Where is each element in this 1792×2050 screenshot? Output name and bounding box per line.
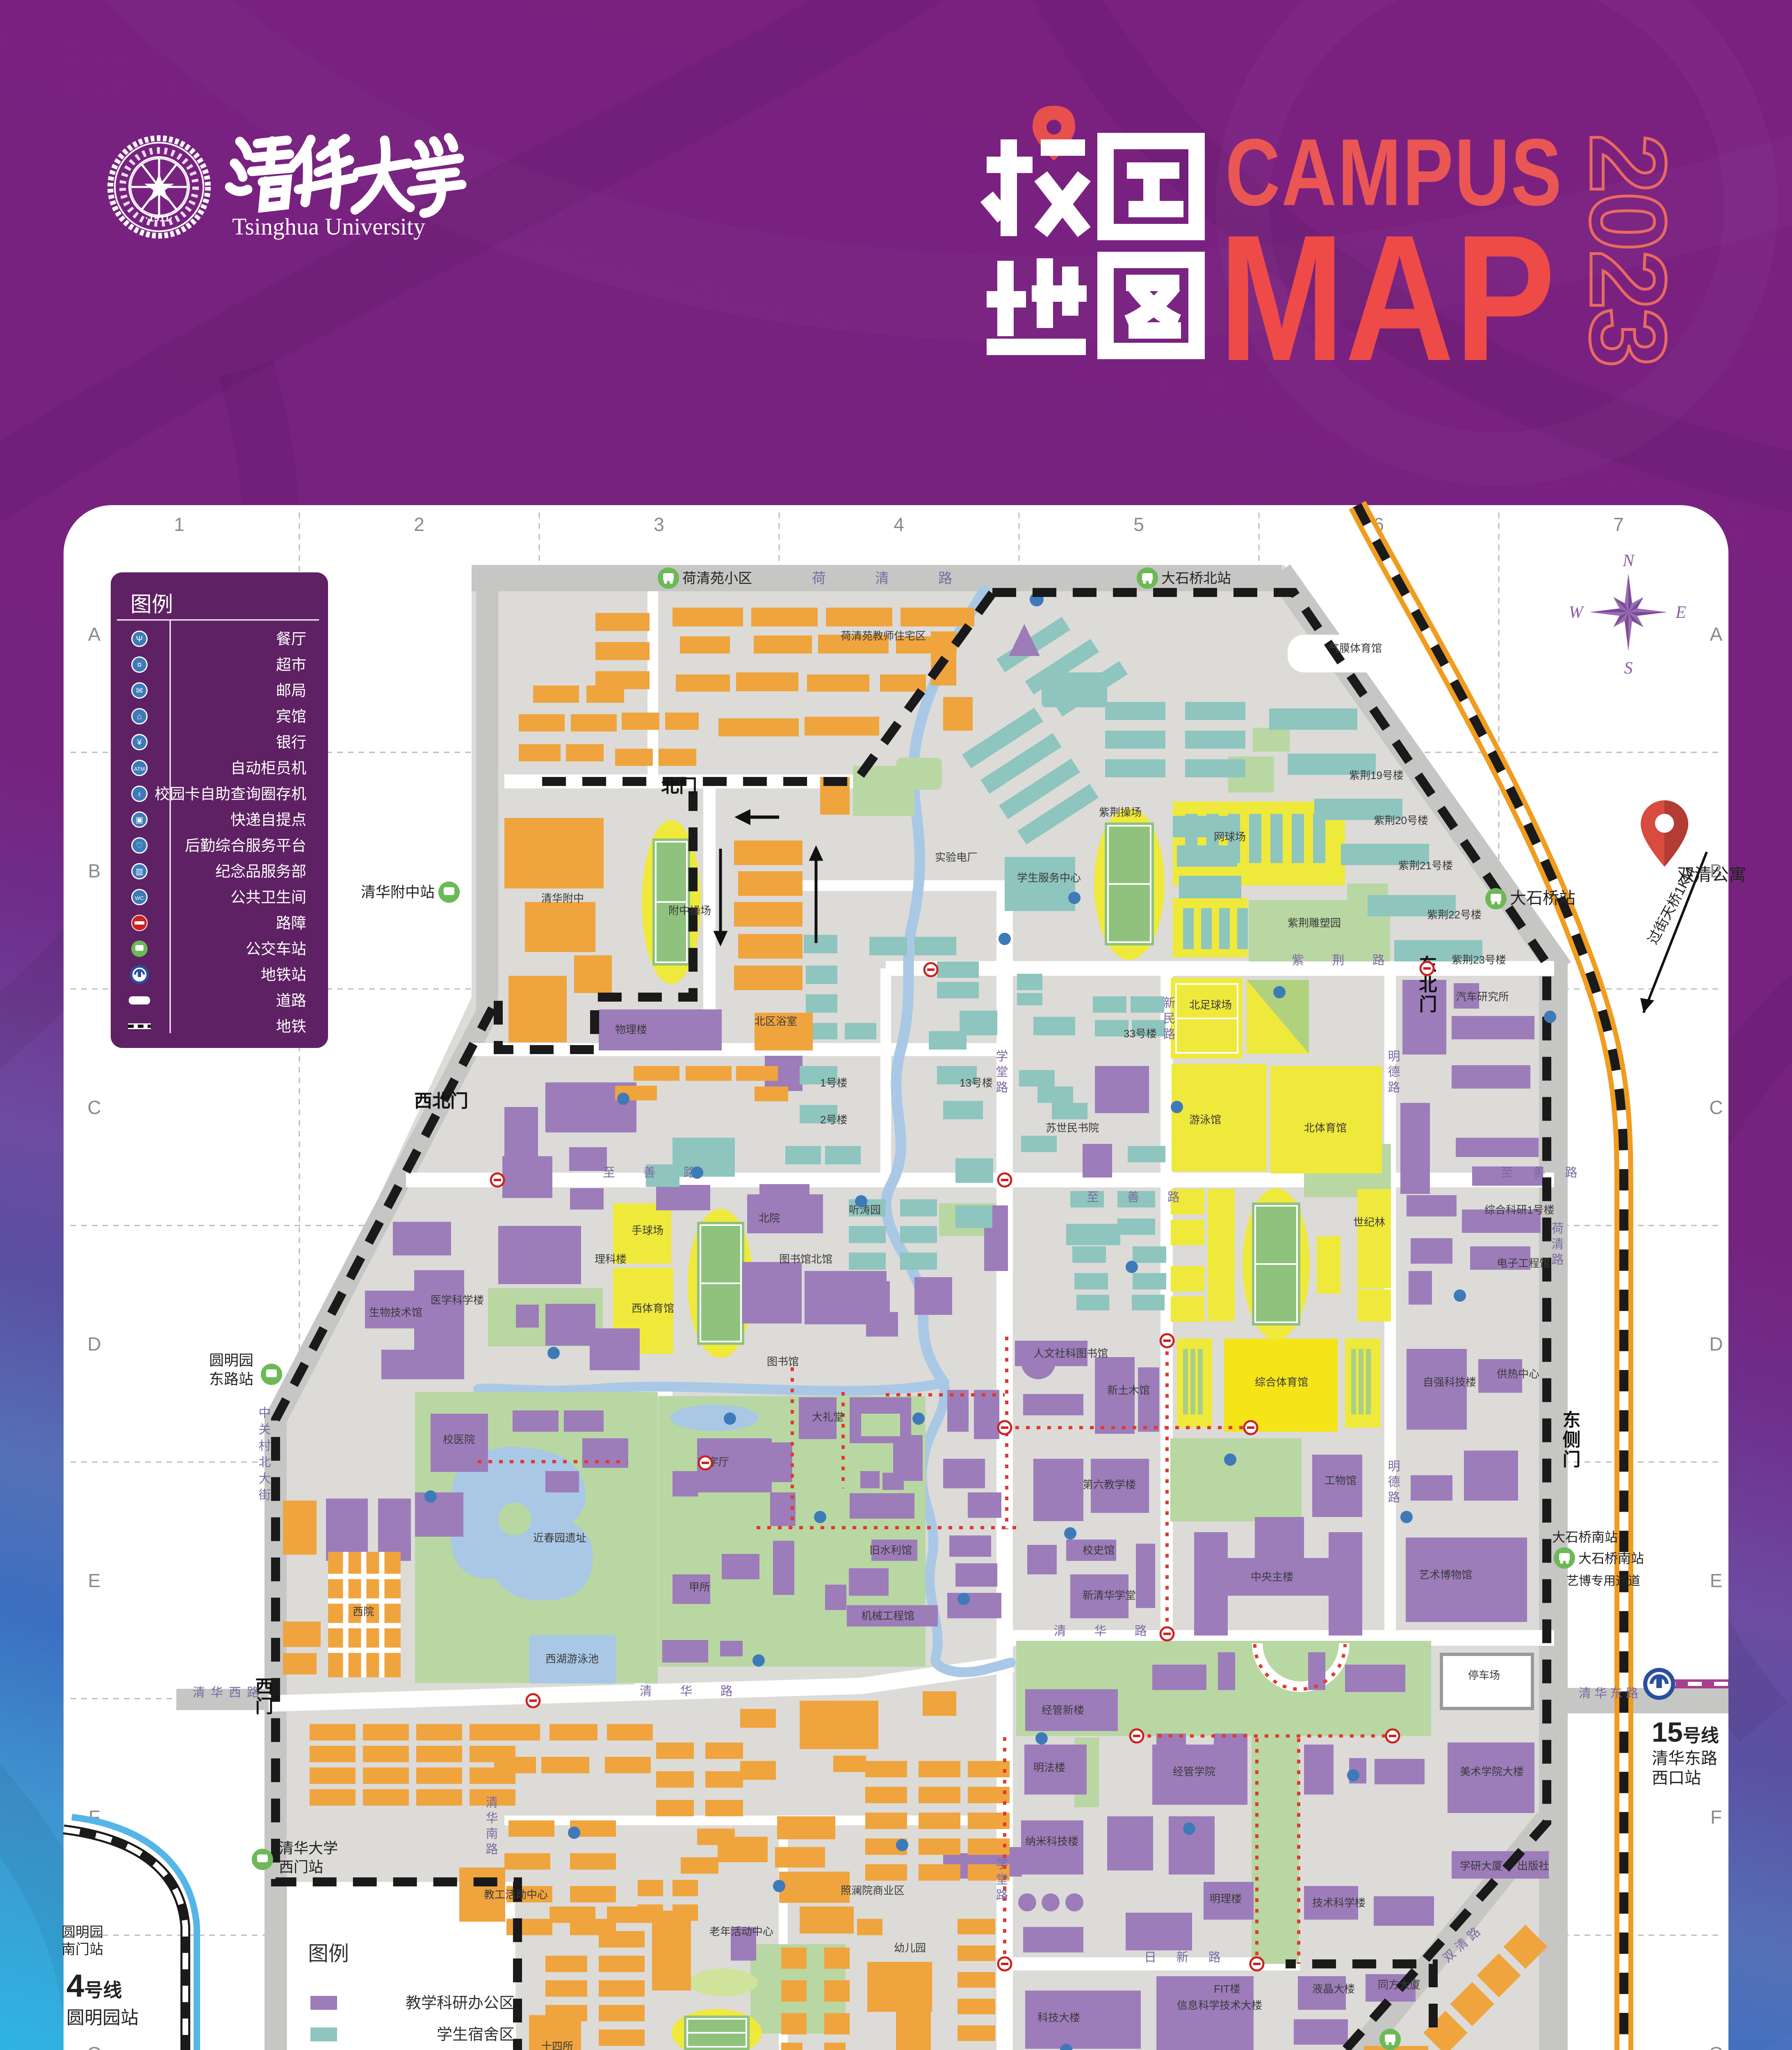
svg-text:B: B: [88, 860, 101, 881]
svg-text:日 新 路: 日 新 路: [1144, 1951, 1229, 1964]
svg-text:新民路: 新民路: [1161, 996, 1175, 1043]
svg-text:紫荆操场: 紫荆操场: [1099, 806, 1142, 818]
svg-text:西院: 西院: [353, 1606, 374, 1618]
svg-text:紫荆22号楼: 紫荆22号楼: [1427, 909, 1482, 921]
svg-text:艺博专用通道: 艺博专用通道: [1566, 1574, 1640, 1588]
svg-text:工物馆: 工物馆: [1325, 1474, 1357, 1487]
svg-text:后勤综合服务平台: 后勤综合服务平台: [185, 837, 306, 854]
svg-text:经管新楼: 经管新楼: [1042, 1704, 1084, 1716]
svg-text:旧水利馆: 旧水利馆: [869, 1544, 912, 1556]
svg-text:¥: ¥: [137, 738, 142, 747]
svg-text:大石桥南站: 大石桥南站: [1552, 1530, 1618, 1544]
svg-text:C: C: [87, 1097, 101, 1118]
svg-text:出版社: 出版社: [1517, 1860, 1549, 1872]
svg-text:图书馆: 图书馆: [767, 1355, 799, 1368]
svg-text:Tsinghua University: Tsinghua University: [232, 213, 425, 240]
svg-text:学研大厦: 学研大厦: [1460, 1860, 1502, 1872]
svg-text:大石桥站: 大石桥站: [1510, 889, 1575, 907]
svg-text:西体育馆: 西体育馆: [632, 1302, 674, 1314]
svg-text:校医院: 校医院: [443, 1433, 475, 1446]
svg-text:世纪林: 世纪林: [1353, 1216, 1385, 1228]
svg-text:汽车研究所: 汽车研究所: [1456, 991, 1509, 1003]
svg-text:公共卫生间: 公共卫生间: [230, 889, 306, 906]
svg-text:F: F: [1710, 1806, 1722, 1828]
svg-text:圆明园: 圆明园: [62, 1925, 103, 1940]
svg-text:·1911·: ·1911·: [145, 213, 173, 224]
svg-text:明德路: 明德路: [1386, 1050, 1400, 1096]
svg-text:教工活动中心: 教工活动中心: [484, 1888, 548, 1901]
svg-text:MAP: MAP: [1219, 198, 1556, 398]
svg-text:荷清路: 荷清路: [1550, 1222, 1564, 1269]
svg-text:紫荆20号楼: 紫荆20号楼: [1374, 814, 1428, 827]
svg-text:北门: 北门: [661, 776, 697, 796]
svg-text:地铁站: 地铁站: [261, 966, 306, 983]
svg-text:FIT楼: FIT楼: [1214, 1983, 1240, 1995]
svg-text:明德路: 明德路: [1386, 1460, 1400, 1506]
svg-text:紫荆雕塑园: 紫荆雕塑园: [1288, 917, 1341, 929]
svg-text:道路: 道路: [276, 992, 306, 1009]
svg-text:¤: ¤: [137, 661, 141, 670]
svg-text:学生宿舍区: 学生宿舍区: [437, 2026, 515, 2043]
svg-text:学堂路: 学堂路: [994, 1050, 1008, 1096]
svg-text:7: 7: [1613, 514, 1624, 535]
svg-text:2: 2: [414, 514, 424, 535]
svg-text:紫 荆 路: 紫 荆 路: [1292, 954, 1397, 967]
svg-text:校园卡自助查询圈存机: 校园卡自助查询圈存机: [155, 786, 306, 802]
svg-text:至 善 路: 至 善 路: [1501, 1166, 1586, 1180]
svg-text:荷清苑小区: 荷清苑小区: [682, 571, 752, 586]
svg-text:电子工程馆: 电子工程馆: [1497, 1257, 1550, 1269]
svg-text:宾馆: 宾馆: [276, 708, 306, 725]
svg-text:D: D: [1709, 1333, 1723, 1355]
svg-text:5: 5: [1133, 514, 1144, 535]
svg-text:清华附中站: 清华附中站: [361, 884, 435, 900]
svg-text:13号楼: 13号楼: [960, 1077, 993, 1089]
svg-text:教学科研办公区: 教学科研办公区: [406, 1995, 515, 2012]
svg-text:综合体育馆: 综合体育馆: [1255, 1376, 1308, 1388]
svg-text:北足球场: 北足球场: [1189, 999, 1232, 1011]
svg-text:明法楼: 明法楼: [1033, 1761, 1065, 1774]
svg-text:1: 1: [174, 514, 185, 535]
svg-text:大石桥南站: 大石桥南站: [1578, 1551, 1644, 1566]
svg-text:西门站: 西门站: [279, 1859, 323, 1875]
svg-text:紫荆19号楼: 紫荆19号楼: [1349, 769, 1404, 781]
svg-text:清华南路: 清华南路: [484, 1796, 498, 1858]
svg-text:北区浴室: 北区浴室: [755, 1015, 797, 1027]
svg-text:清 华 东 路: 清 华 东 路: [1579, 1687, 1638, 1700]
svg-text:手球场: 手球场: [632, 1224, 663, 1237]
svg-text:学堂路: 学堂路: [994, 1857, 1008, 1904]
svg-text:十四所: 十四所: [541, 2040, 573, 2050]
svg-text:大石桥北站: 大石桥北站: [1161, 571, 1231, 586]
svg-text:北体育馆: 北体育馆: [1304, 1122, 1347, 1134]
svg-text:A: A: [88, 624, 101, 645]
svg-text:老年活动中心: 老年活动中心: [709, 1925, 773, 1938]
svg-text:图书馆北馆: 图书馆北馆: [779, 1253, 832, 1265]
svg-text:技术科学楼: 技术科学楼: [1312, 1897, 1366, 1909]
svg-text:新土木馆: 新土木馆: [1107, 1384, 1150, 1396]
svg-text:N: N: [1622, 551, 1635, 570]
svg-text:S: S: [1624, 659, 1633, 678]
svg-text:西湖游泳池: 西湖游泳池: [545, 1653, 599, 1665]
svg-text:东侧门: 东侧门: [1560, 1410, 1581, 1469]
svg-text:D: D: [87, 1333, 101, 1355]
svg-text:超市: 超市: [276, 656, 306, 673]
svg-text:西口站: 西口站: [1652, 1769, 1701, 1787]
svg-text:G: G: [87, 2043, 102, 2050]
svg-text:图例: 图例: [130, 593, 173, 617]
svg-text:幼儿园: 幼儿园: [894, 1942, 926, 1954]
svg-text:综合科研1号楼: 综合科研1号楼: [1484, 1204, 1554, 1216]
svg-text:紫荆23号楼: 紫荆23号楼: [1452, 954, 1506, 966]
svg-text:甲所: 甲所: [689, 1581, 710, 1593]
svg-text:实验电厂: 实验电厂: [935, 851, 978, 863]
svg-text:科技大楼: 科技大楼: [1037, 2011, 1080, 2024]
svg-text:医学科学楼: 医学科学楼: [431, 1294, 484, 1306]
svg-text:物理楼: 物理楼: [615, 1023, 647, 1036]
svg-text:经管学院: 经管学院: [1173, 1765, 1215, 1778]
svg-text:圆明园站: 圆明园站: [66, 2008, 139, 2028]
svg-text:圆明园: 圆明园: [209, 1352, 253, 1369]
svg-text:供热中心: 供热中心: [1497, 1368, 1539, 1380]
svg-text:游泳馆: 游泳馆: [1189, 1114, 1221, 1126]
svg-text:公交车站: 公交车站: [246, 941, 306, 957]
svg-text:♡: ♡: [136, 841, 143, 850]
svg-text:学生服务中心: 学生服务中心: [1017, 872, 1081, 884]
svg-text:清 华 路: 清 华 路: [640, 1685, 745, 1698]
svg-text:信息科学技术大楼: 信息科学技术大楼: [1177, 1999, 1262, 2011]
svg-text:1号楼: 1号楼: [820, 1077, 847, 1089]
svg-text:ATM: ATM: [134, 766, 145, 772]
svg-text:照澜院商业区: 照澜院商业区: [841, 1884, 905, 1897]
svg-text:自强科技楼: 自强科技楼: [1423, 1376, 1476, 1388]
svg-text:3: 3: [654, 514, 664, 535]
svg-text:艺术博物馆: 艺术博物馆: [1419, 1569, 1472, 1581]
svg-text:东路站: 东路站: [209, 1371, 253, 1387]
svg-text:C: C: [1709, 1097, 1723, 1118]
svg-text:2号楼: 2号楼: [820, 1114, 847, 1126]
svg-text:邮局: 邮局: [276, 682, 306, 699]
svg-text:新清华学堂: 新清华学堂: [1083, 1589, 1136, 1601]
svg-text:地铁: 地铁: [276, 1018, 306, 1035]
svg-text:网球场: 网球场: [1214, 831, 1246, 843]
svg-text:▣: ▣: [136, 815, 144, 825]
svg-text:WC: WC: [135, 895, 144, 901]
svg-text:第六教学楼: 第六教学楼: [1083, 1478, 1136, 1491]
svg-text:W: W: [1569, 603, 1585, 622]
svg-text:荷清苑教师住宅区: 荷清苑教师住宅区: [841, 630, 926, 642]
svg-text:清华大学: 清华大学: [279, 1840, 338, 1856]
svg-text:机械工程馆: 机械工程馆: [861, 1610, 914, 1622]
svg-text:大礼堂: 大礼堂: [812, 1411, 844, 1423]
svg-text:同方大厦: 同方大厦: [1378, 1979, 1420, 1991]
svg-text:A: A: [1710, 624, 1723, 645]
svg-text:近春园遗址: 近春园遗址: [533, 1532, 586, 1544]
svg-text:苏世民书院: 苏世民书院: [1046, 1122, 1099, 1134]
svg-text:E: E: [1710, 1570, 1723, 1591]
svg-text:✉: ✉: [136, 686, 143, 695]
svg-text:4: 4: [894, 514, 904, 535]
svg-text:图例: 图例: [308, 1942, 349, 1965]
svg-text:美术学院大楼: 美术学院大楼: [1460, 1765, 1524, 1778]
svg-text:明理楼: 明理楼: [1210, 1893, 1242, 1905]
svg-text:自动柜员机: 自动柜员机: [230, 760, 306, 777]
svg-text:液晶大楼: 液晶大楼: [1312, 1983, 1355, 1995]
svg-text:生物技术馆: 生物技术馆: [369, 1306, 422, 1319]
svg-text:人文社科图书馆: 人文社科图书馆: [1033, 1347, 1108, 1360]
svg-text:餐厅: 餐厅: [276, 631, 306, 647]
svg-text:纪念品服务部: 纪念品服务部: [215, 863, 306, 880]
svg-text:纳米科技楼: 纳米科技楼: [1025, 1835, 1078, 1847]
svg-text:至 善 路: 至 善 路: [1087, 1191, 1192, 1204]
svg-text:南门站: 南门站: [62, 1942, 103, 1957]
svg-text:E: E: [88, 1570, 101, 1591]
svg-text:33号楼: 33号楼: [1124, 1027, 1157, 1040]
svg-text:理科楼: 理科楼: [595, 1253, 627, 1265]
svg-text:荷清路: 荷清路: [812, 571, 1001, 586]
svg-text:⌂: ⌂: [137, 712, 142, 721]
svg-text:2023: 2023: [1568, 134, 1688, 366]
svg-text:E: E: [1675, 603, 1686, 622]
svg-text:停车场: 停车场: [1468, 1669, 1500, 1681]
svg-text:清华东路: 清华东路: [1652, 1749, 1717, 1768]
svg-text:Ψ: Ψ: [136, 635, 143, 644]
svg-text:附中操场: 附中操场: [668, 904, 711, 917]
svg-text:中央主楼: 中央主楼: [1251, 1571, 1293, 1583]
svg-text:♁: ♁: [137, 790, 143, 799]
svg-text:路障: 路障: [276, 915, 306, 932]
svg-text:校史馆: 校史馆: [1083, 1544, 1115, 1556]
svg-text:清华附中: 清华附中: [541, 892, 584, 904]
svg-text:▥: ▥: [136, 867, 144, 876]
svg-text:清 华 路: 清 华 路: [1054, 1624, 1159, 1638]
svg-text:银行: 银行: [276, 734, 306, 751]
svg-text:西北门: 西北门: [414, 1091, 468, 1111]
svg-text:清华西路: 清华西路: [193, 1686, 265, 1699]
svg-text:G: G: [1709, 2043, 1724, 2050]
svg-text:北院: 北院: [759, 1212, 780, 1224]
svg-text:中关村北大街: 中关村北大街: [257, 1406, 271, 1505]
svg-text:紫荆21号楼: 紫荆21号楼: [1398, 859, 1453, 872]
svg-text:气膜体育馆: 气膜体育馆: [1329, 642, 1382, 654]
svg-text:快递自提点: 快递自提点: [230, 811, 306, 828]
